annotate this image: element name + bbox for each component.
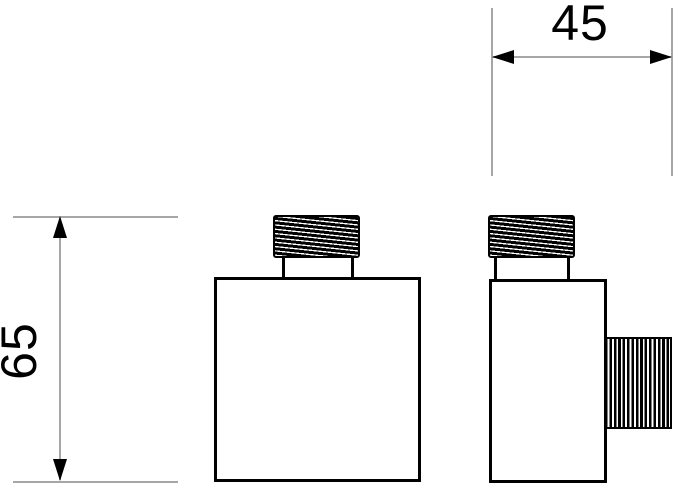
height-extension-line-top — [13, 216, 178, 218]
height-extension-line-bottom — [13, 481, 178, 483]
width-dimension-label: 45 — [549, 0, 611, 46]
width-arrow-right-icon — [650, 50, 672, 64]
width-extension-line-left — [491, 8, 493, 176]
width-dimension-line — [492, 56, 672, 58]
side-view-body — [489, 279, 607, 483]
side-view-side-thread — [605, 337, 672, 429]
front-view-body — [214, 277, 421, 482]
height-dimension-label: 65 — [0, 317, 42, 385]
width-arrow-left-icon — [492, 50, 514, 64]
front-view-top-thread — [273, 215, 360, 258]
height-arrow-down-icon — [53, 459, 67, 481]
width-extension-line-right — [671, 8, 673, 176]
height-dimension-line — [59, 217, 61, 480]
height-arrow-up-icon — [53, 216, 67, 238]
technical-drawing-canvas: 45 65 — [0, 0, 678, 486]
side-view-top-thread — [488, 215, 575, 258]
side-view-neck — [494, 257, 570, 281]
